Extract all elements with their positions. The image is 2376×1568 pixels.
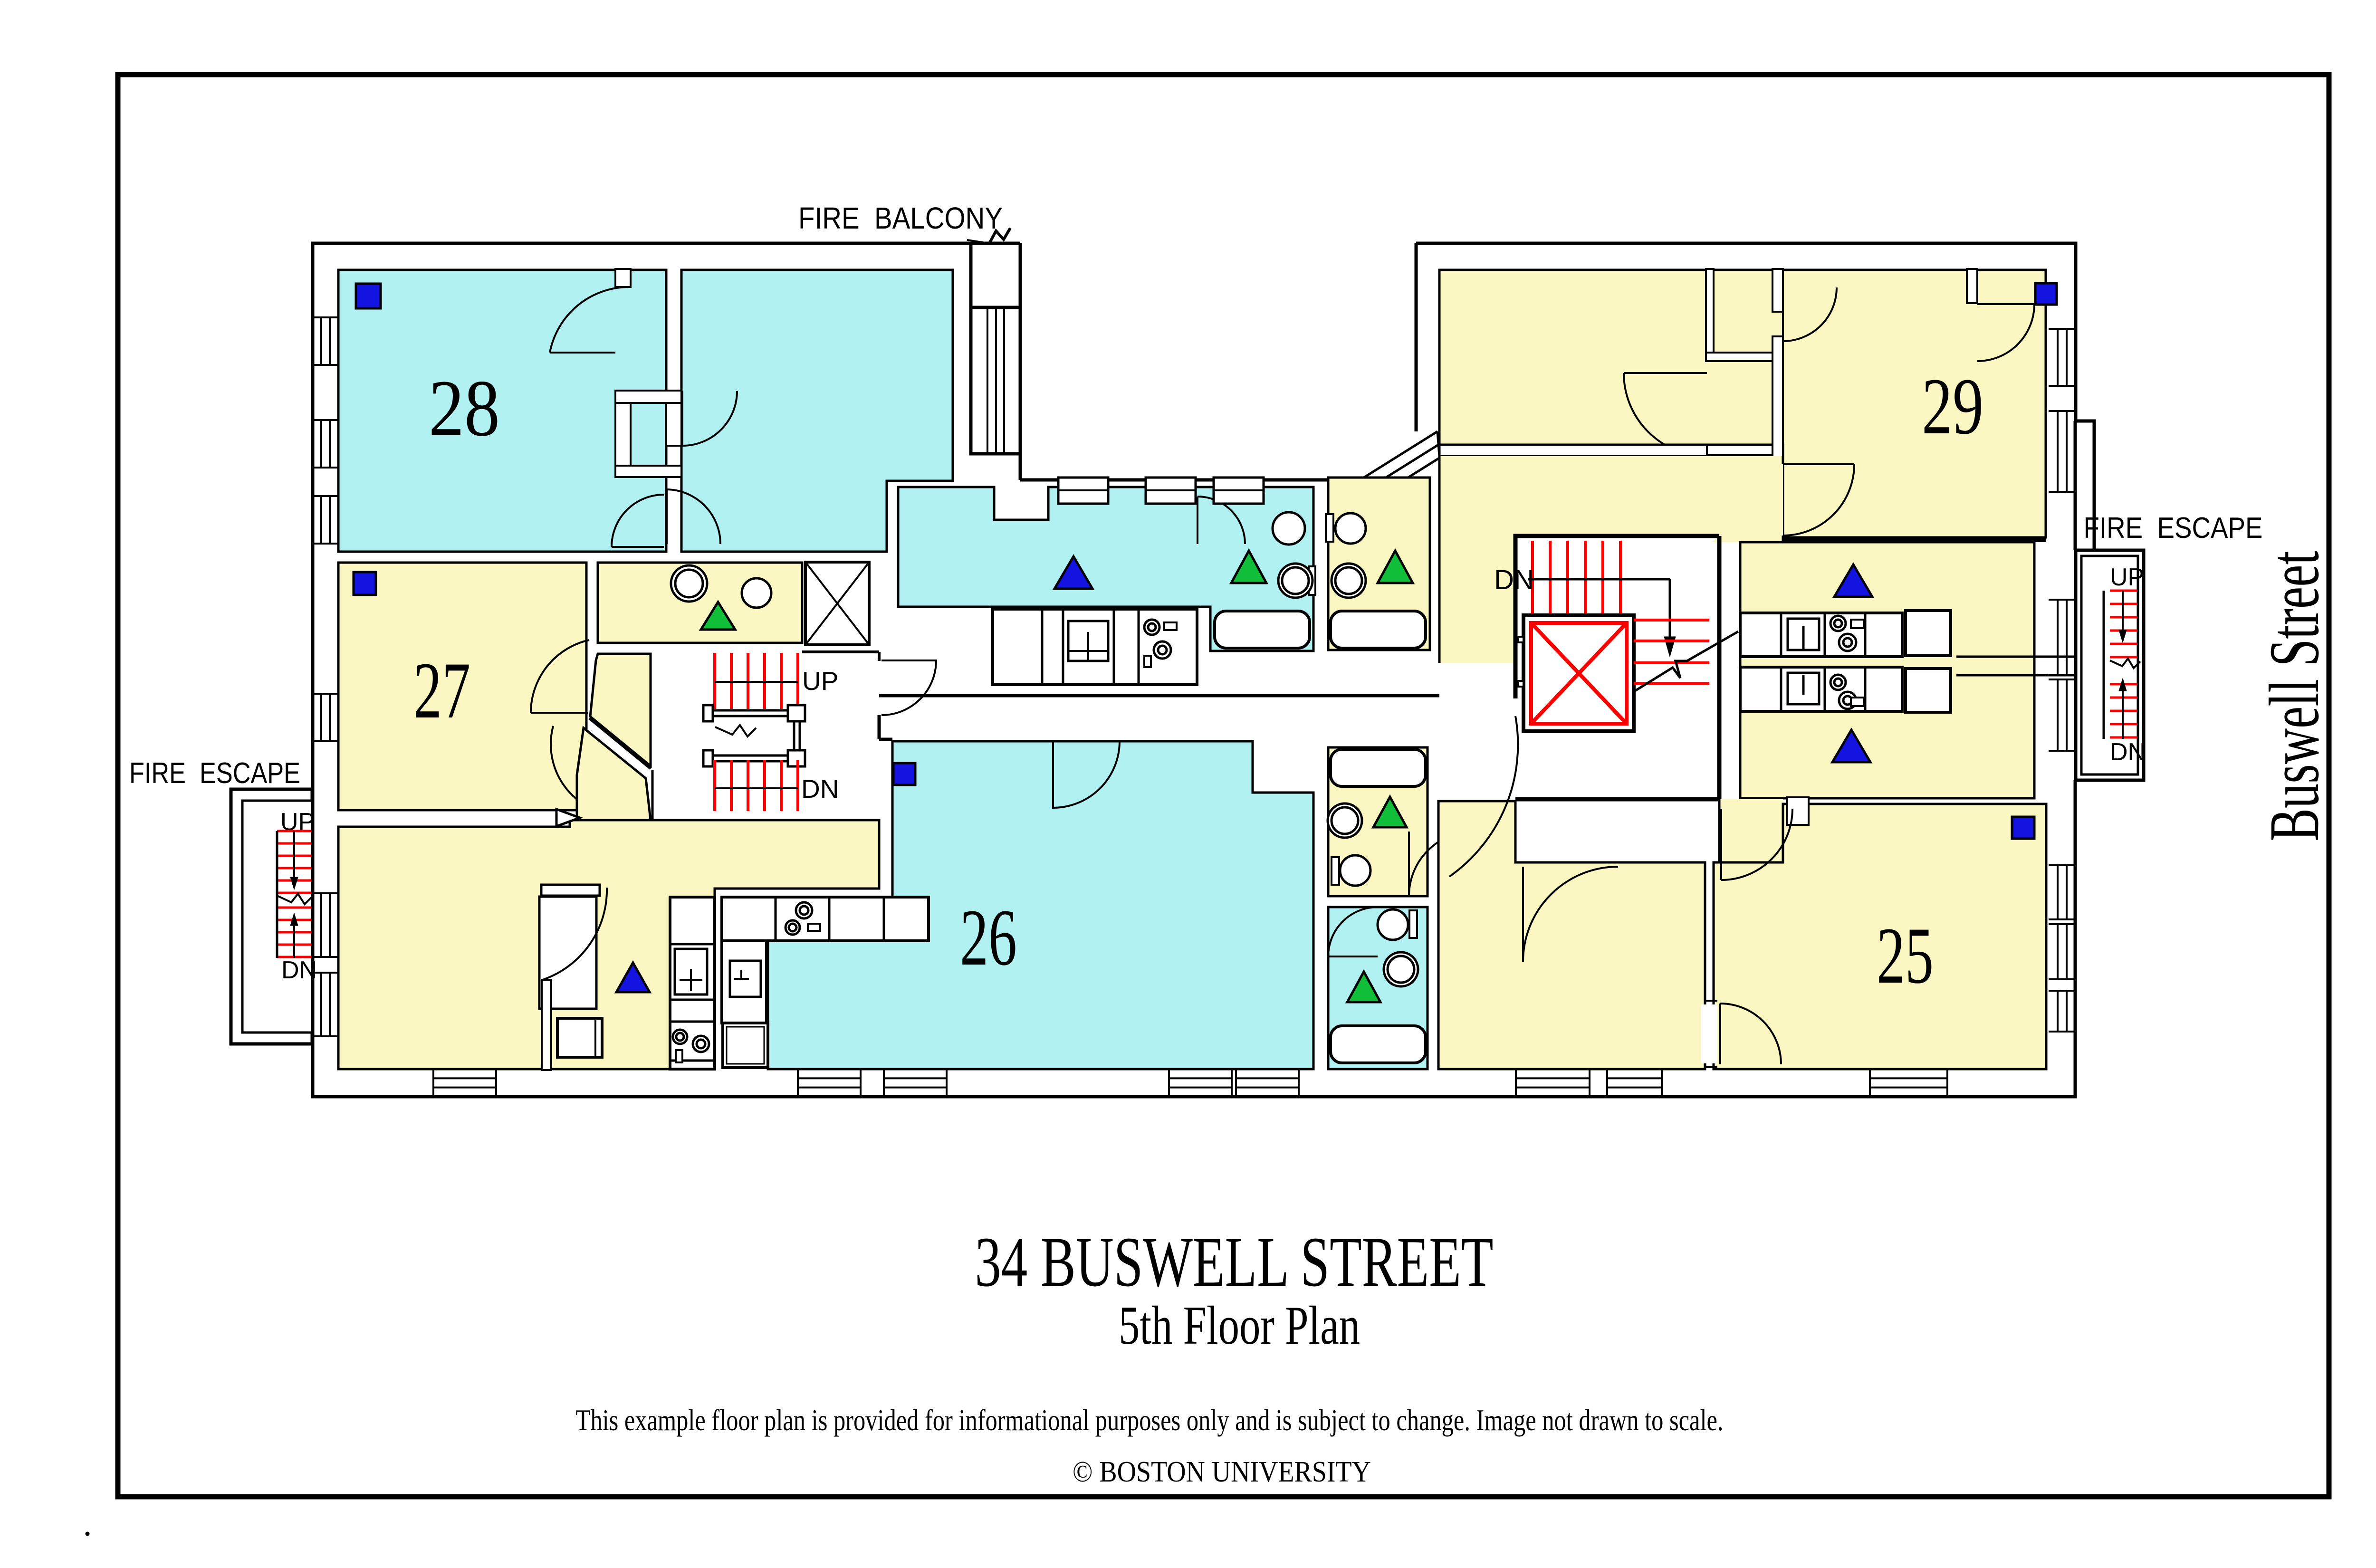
svg-text:DN: DN [2110,738,2146,766]
svg-text:29: 29 [1922,362,1983,451]
svg-text:UP: UP [802,666,838,696]
svg-text:FIRE BALCONY: FIRE BALCONY [798,201,1003,235]
svg-text:UP: UP [2110,564,2144,591]
svg-text:DN: DN [801,774,839,803]
svg-text:This example floor plan is pro: This example floor plan is provided for … [576,1403,1724,1437]
svg-text:28: 28 [429,363,500,453]
svg-text:FIRE ESCAPE: FIRE ESCAPE [2084,512,2263,545]
svg-text:25: 25 [1877,911,1934,1000]
svg-text:26: 26 [960,893,1017,982]
svg-text:27: 27 [413,646,470,735]
svg-text:DN: DN [281,956,317,984]
svg-text:© BOSTON UNIVERSITY: © BOSTON UNIVERSITY [1073,1456,1371,1488]
svg-text:34 BUSWELL STREET: 34 BUSWELL STREET [975,1223,1494,1301]
svg-text:FIRE ESCAPE: FIRE ESCAPE [129,757,300,790]
svg-text:Buswell Street: Buswell Street [2255,551,2334,841]
svg-text:5th Floor Plan: 5th Floor Plan [1119,1295,1360,1356]
